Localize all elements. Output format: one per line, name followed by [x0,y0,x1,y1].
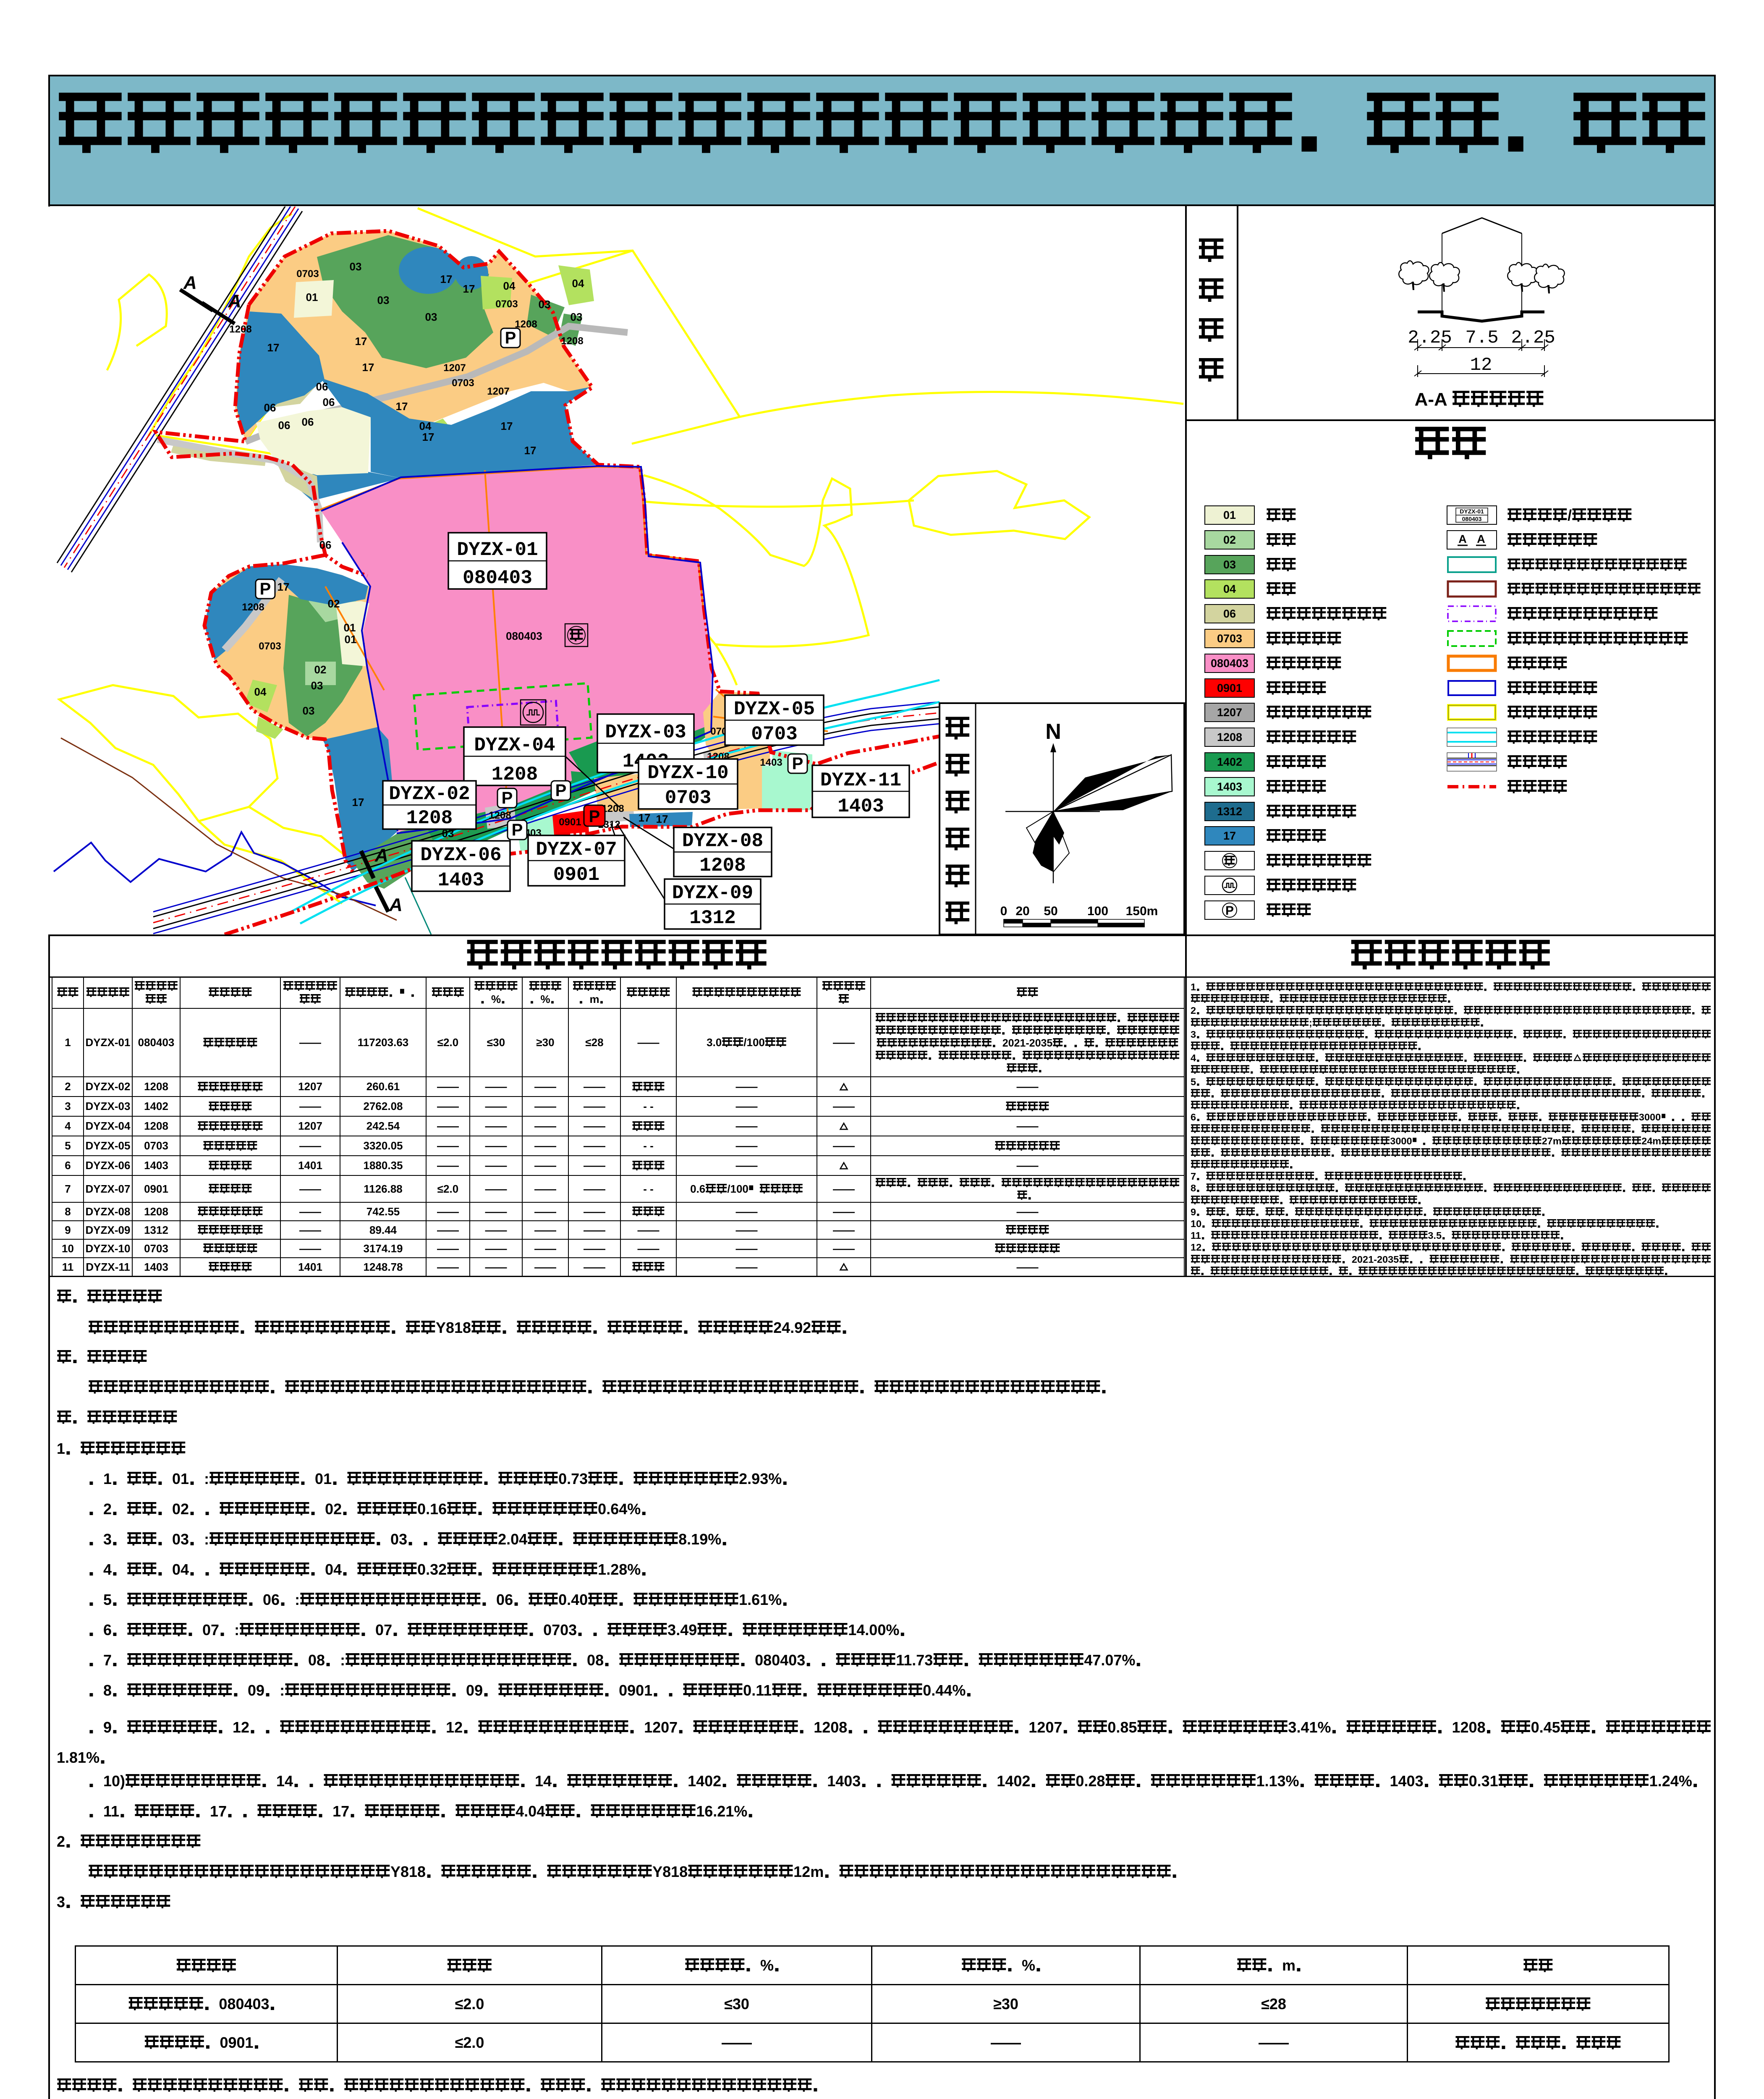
svg-text:1403: 1403 [760,757,782,767]
svg-text:0703: 0703 [296,268,319,278]
svg-text:17: 17 [656,814,668,824]
svg-text:DYZX-01: DYZX-01 [1460,508,1484,514]
svg-text:1208: 1208 [492,764,538,785]
svg-text:DYZX-10: DYZX-10 [647,762,728,784]
svg-text:DYZX-01: DYZX-01 [457,539,538,561]
svg-text:17: 17 [501,421,513,432]
svg-text:1403: 1403 [838,796,884,817]
svg-text:100: 100 [1087,904,1108,917]
svg-text:17: 17 [463,283,475,294]
svg-text:06: 06 [278,420,291,431]
svg-text:风: 风 [945,715,971,741]
svg-text:DYZX-04: DYZX-04 [474,735,555,756]
svg-text:DYZX-03: DYZX-03 [605,722,686,743]
svg-text:04: 04 [419,421,432,432]
svg-text:0703: 0703 [452,377,474,387]
svg-text:03: 03 [539,299,551,310]
svg-text:17: 17 [352,797,364,808]
svg-text:17: 17 [355,336,367,347]
svg-text:瑰: 瑰 [945,789,971,815]
svg-text:0: 0 [1000,904,1008,917]
svg-text:03: 03 [311,680,323,691]
svg-text:03: 03 [377,295,390,306]
svg-text:P: P [512,821,523,838]
svg-text:1208: 1208 [229,324,251,334]
svg-text:0703: 0703 [259,641,281,651]
svg-text:P: P [792,754,803,771]
svg-text:17: 17 [524,445,537,456]
svg-text:尺: 尺 [945,900,971,926]
svg-text:DYZX-11: DYZX-11 [820,769,901,791]
svg-text:A: A [228,291,241,310]
svg-text:DYZX-05: DYZX-05 [734,699,815,720]
svg-text:20: 20 [1015,904,1029,917]
svg-text:DYZX-06: DYZX-06 [420,844,501,866]
svg-text:06: 06 [316,381,328,392]
svg-text:04: 04 [572,278,584,289]
svg-text:P: P [502,789,513,806]
svg-text:0703: 0703 [495,298,518,309]
svg-text:080403: 080403 [1462,516,1482,522]
svg-text:1207: 1207 [443,362,466,372]
svg-text:中: 中 [569,628,584,642]
svg-text:DYZX-08: DYZX-08 [682,830,763,852]
svg-text:1403: 1403 [438,869,484,891]
svg-text:12: 12 [1470,355,1492,376]
svg-text:1208: 1208 [489,810,511,820]
svg-text:17: 17 [396,401,408,412]
svg-text:0901: 0901 [553,864,599,886]
svg-text:A: A [183,273,197,291]
svg-text:17: 17 [267,342,280,353]
svg-text:P: P [555,781,567,798]
svg-text:02: 02 [314,664,327,675]
svg-text:06: 06 [323,397,335,408]
svg-text:06: 06 [264,402,276,413]
svg-text:080403: 080403 [506,631,542,641]
svg-text:1208: 1208 [515,319,537,329]
svg-text:17: 17 [277,581,290,592]
svg-text:比: 比 [945,826,971,852]
svg-text:1208: 1208 [242,602,264,612]
svg-text:P: P [505,329,516,345]
svg-text:中: 中 [1224,855,1235,866]
svg-text:17: 17 [362,362,374,373]
svg-text:1208: 1208 [561,335,583,345]
svg-text:7.5: 7.5 [1465,327,1498,348]
svg-text:04: 04 [254,686,267,697]
svg-text:17: 17 [422,432,434,442]
svg-text:玫: 玫 [945,752,971,778]
svg-text:03: 03 [303,705,315,716]
svg-text:2.25: 2.25 [1511,327,1555,348]
svg-text:1208: 1208 [699,855,746,877]
svg-text:DYZX-02: DYZX-02 [389,783,470,805]
svg-text:P: P [1225,904,1234,916]
svg-text:06: 06 [319,539,332,550]
svg-text:17: 17 [440,274,453,285]
svg-text:01: 01 [344,622,356,633]
svg-text:A: A [389,895,403,913]
svg-text:1207: 1207 [487,386,509,396]
svg-text:03: 03 [571,311,583,322]
svg-text:0703: 0703 [751,723,797,745]
svg-text:080403: 080403 [463,567,532,589]
svg-text:DYZX-07: DYZX-07 [536,839,617,861]
svg-text:150m: 150m [1126,904,1158,917]
svg-text:17: 17 [639,812,651,823]
svg-text:01: 01 [345,634,357,645]
svg-text:01: 01 [306,292,318,303]
svg-text:例: 例 [945,863,971,889]
svg-text:A-A 道路横断面: A-A 道路横断面 [1415,390,1544,408]
svg-text:0901: 0901 [559,817,581,827]
svg-text:04: 04 [503,280,516,291]
svg-text:03: 03 [425,311,437,322]
svg-text:03: 03 [350,261,362,272]
svg-text:06: 06 [302,416,314,427]
svg-text:N: N [1045,720,1061,742]
svg-text:P: P [589,807,600,824]
svg-text:DYZX-09: DYZX-09 [672,882,753,904]
svg-text:A: A [1458,533,1467,544]
svg-text:A: A [1477,533,1485,544]
svg-text:A: A [374,845,388,864]
svg-text:02: 02 [328,598,340,609]
svg-text:50: 50 [1044,904,1057,917]
svg-text:1208: 1208 [406,807,453,829]
svg-text:0703: 0703 [665,787,711,809]
svg-text:1312: 1312 [689,907,735,929]
svg-text:P: P [260,580,271,597]
